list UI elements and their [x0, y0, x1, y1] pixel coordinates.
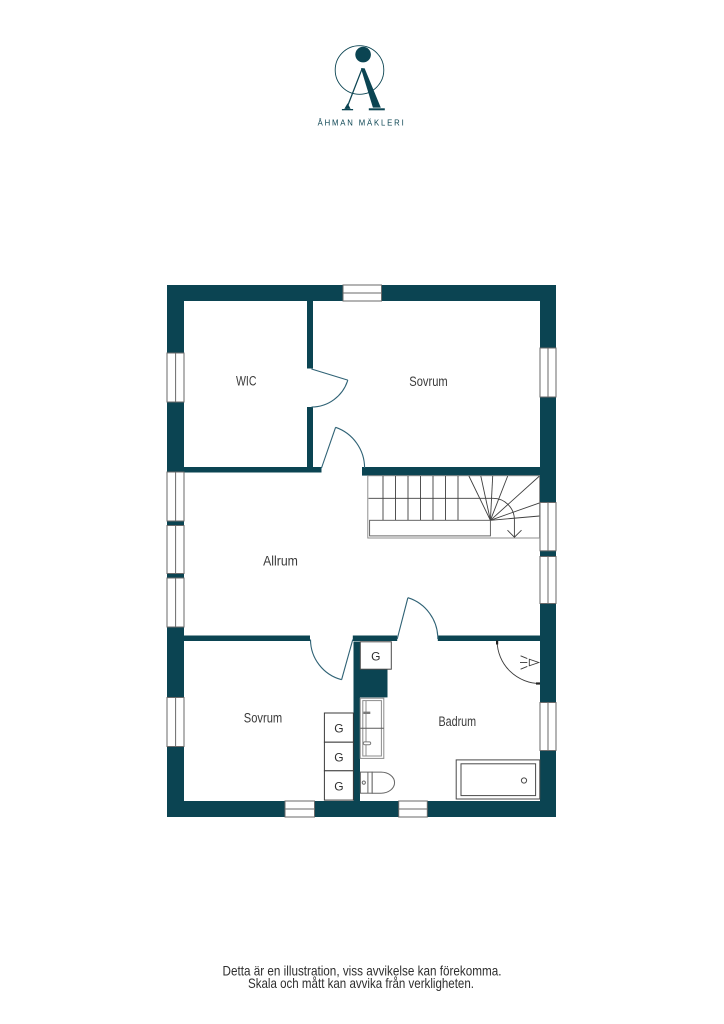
svg-text:G: G — [334, 780, 343, 794]
svg-text:Sovrum: Sovrum — [409, 374, 447, 389]
svg-text:G: G — [334, 751, 343, 765]
svg-text:Allrum: Allrum — [263, 554, 298, 569]
svg-text:WIC: WIC — [236, 373, 257, 388]
svg-text:G: G — [371, 650, 380, 664]
svg-text:ÅHMAN MÄKLERI: ÅHMAN MÄKLERI — [318, 118, 406, 128]
svg-text:Badrum: Badrum — [438, 714, 476, 729]
svg-text:Sovrum: Sovrum — [244, 711, 282, 726]
svg-text:Skala och mått kan avvika från: Skala och mått kan avvika från verklighe… — [248, 976, 474, 991]
svg-text:G: G — [334, 722, 343, 736]
